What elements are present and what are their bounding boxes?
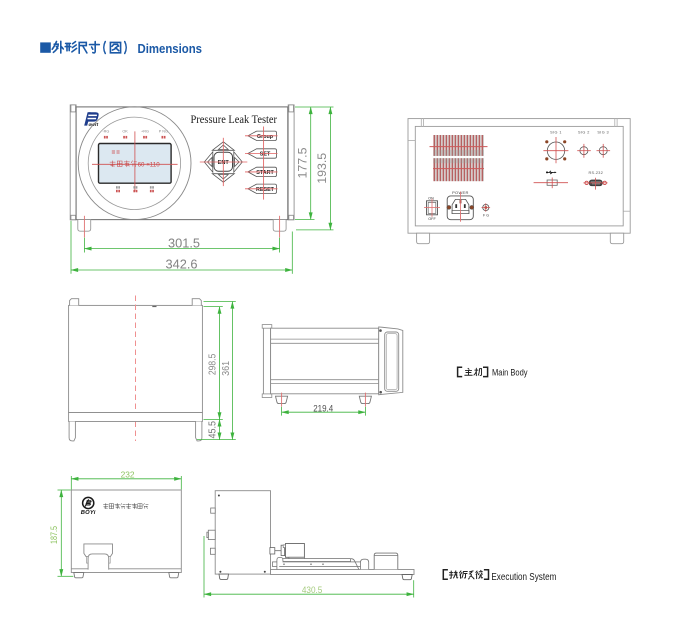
svg-text:SIG 2: SIG 2 [578,131,590,135]
svg-text:-RG: -RG [102,129,109,133]
svg-text:361: 361 [221,361,232,376]
svg-text:BOYi: BOYi [81,510,96,516]
svg-text:SIG 3: SIG 3 [597,131,609,135]
svg-text:232: 232 [121,470,135,480]
svg-text:301.5: 301.5 [168,236,200,250]
svg-text:177.5: 177.5 [295,147,309,178]
svg-text:Main Body: Main Body [492,367,528,378]
svg-text:193.5: 193.5 [315,152,329,183]
svg-text:219.4: 219.4 [313,403,334,414]
svg-text:SET: SET [260,152,271,158]
svg-text:298.5: 298.5 [208,353,219,375]
svg-text:60 ×110: 60 ×110 [138,161,161,168]
svg-text:430.5: 430.5 [302,585,323,596]
svg-text:SIG 1: SIG 1 [550,131,562,135]
svg-text:P NG: P NG [159,129,168,133]
svg-text:ON: ON [428,197,434,201]
svg-text:OK: OK [122,129,128,133]
svg-text:F G: F G [483,214,489,218]
svg-text:342.6: 342.6 [166,258,198,272]
svg-text:45.5: 45.5 [208,421,219,439]
svg-text:Group: Group [257,134,274,140]
svg-text:+RG: +RG [141,129,149,133]
svg-text:Execution System: Execution System [491,572,556,583]
svg-text:RESET: RESET [256,187,275,193]
svg-text:187.5: 187.5 [49,526,59,544]
svg-text:RS-232: RS-232 [588,171,603,175]
svg-text:Dimensions: Dimensions [138,41,203,56]
svg-text:Pressure Leak Tester: Pressure Leak Tester [191,113,278,126]
svg-text:OFF: OFF [428,217,436,221]
svg-text:START: START [256,170,274,176]
